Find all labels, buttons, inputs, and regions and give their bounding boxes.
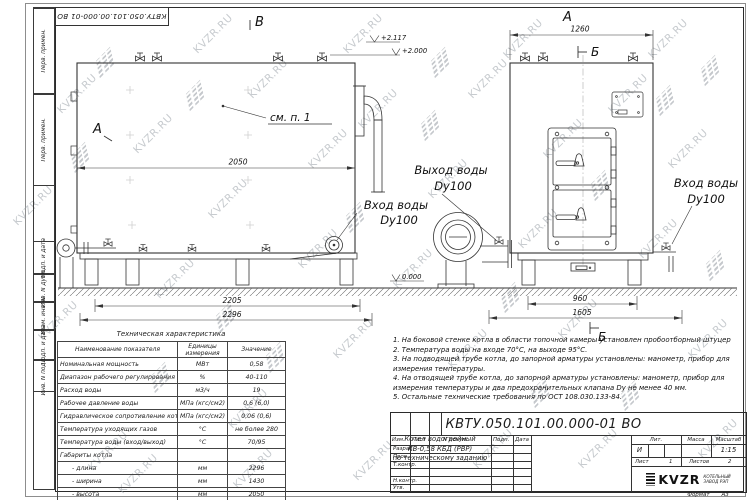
inspection-panel <box>612 92 643 117</box>
watermark-text: KVZR.RU <box>341 12 385 56</box>
spec-cell: - ширина <box>58 475 178 488</box>
watermark-text: KVZR.RU <box>606 72 650 116</box>
left-view-annotations: В А см. п. 1 +2.117 +2.000 0.000 2050 <box>77 15 427 326</box>
spec-cell: 2050 <box>228 488 286 500</box>
watermark-text: KVZR.RU <box>306 127 350 171</box>
watermark-text: KVZR.RU <box>541 117 585 161</box>
spec-cell: Рабочее давление воды <box>58 397 178 410</box>
note-line: 2. Температура воды на входе 70°С, на вы… <box>393 346 745 356</box>
spec-cell <box>228 449 286 462</box>
col-ndoc: N докум. <box>443 437 468 443</box>
drawing-sheet: KVZR.RUKVZR.RUKVZR.RUKVZR.RUKVZR.RUKVZR.… <box>0 0 750 500</box>
spec-row: Температура воды (вход/выход)°С70/95 <box>58 436 286 449</box>
lit-value: И <box>631 446 648 454</box>
watermark-text: KVZR.RU <box>516 207 560 251</box>
row-prov: Пров. <box>393 454 409 460</box>
company-subtitle-line2: ЗАВОД РЭП <box>703 479 730 484</box>
coil-logo-icon <box>646 473 655 486</box>
spec-col-value: Значение <box>228 342 286 358</box>
furnace-doors <box>548 128 616 250</box>
spec-table-title: Техническая характеристика <box>57 330 285 338</box>
col-data: Дата <box>515 437 529 443</box>
lit-label: Лит. <box>631 437 681 443</box>
kvzr-logo-watermark-icon <box>93 50 118 75</box>
margin-cell-label: Перв. примен. <box>41 29 47 73</box>
chimney-pipe <box>353 86 385 192</box>
spec-row: Номинальная мощностьМВт0,58 <box>58 358 286 371</box>
elevation-2000: +2.000 <box>402 47 427 55</box>
view-marker-a-top: А <box>562 10 572 25</box>
kvzr-logo-watermark-icon <box>698 58 723 83</box>
format-label: Формат <box>687 492 709 498</box>
spec-row: - высотамм2050 <box>58 488 286 500</box>
spec-cell: 0,6 (6,0) <box>228 397 286 410</box>
margin-cell-perv_primen_2: Перв. примен. <box>34 94 54 186</box>
note-line: 4. На отводящей трубе котла, до запорной… <box>393 374 745 393</box>
spec-row: Габариты котла <box>58 449 286 462</box>
spec-cell: Габариты котла <box>58 449 178 462</box>
top-designation-text: КВТУ.050.101.00.000-01 ВО <box>57 12 166 21</box>
watermark-text: KVZR.RU <box>426 157 470 201</box>
dim-2296: 2296 <box>222 310 241 319</box>
note-line: 3. На подводящей трубе котла, до запорно… <box>393 355 745 374</box>
company-logo-text: KVZR <box>658 472 700 487</box>
note-line: 5. Остальные технические требования по О… <box>393 393 745 403</box>
doc-name-line1: Котел водогрейный <box>391 435 489 445</box>
sheet-value: 1 <box>669 459 672 465</box>
see-note-callout: см. п. 1 <box>270 112 311 124</box>
watermark-text: KVZR.RU <box>246 57 290 101</box>
spec-cell: 0,06 (0,6) <box>228 410 286 423</box>
kvzr-logo-watermark-icon <box>418 113 443 138</box>
spec-col-units: Единицы измерения <box>178 342 228 358</box>
view-marker-a-side: А <box>92 122 102 137</box>
spec-cell: мм <box>178 475 228 488</box>
spec-row: Расход водым3/ч19 <box>58 384 286 397</box>
left-margin-strip: Перв. примен.Перв. примен.Подп. и датаИн… <box>33 7 55 490</box>
margin-cell-label: Инв. N подл. <box>41 357 47 395</box>
spec-cell: мм <box>178 462 228 475</box>
watermark-text: KVZR.RU <box>556 297 600 341</box>
watermark-text: KVZR.RU <box>466 57 510 101</box>
col-list: Лист <box>412 437 426 443</box>
outlet-label: Выход воды <box>414 163 487 177</box>
elevation-2117: +2.117 <box>381 34 407 42</box>
dim-960: 960 <box>573 294 588 303</box>
right-view-annotations: А 1260 Б 960 1605 Б <box>489 10 682 344</box>
spec-cell: - длина <box>58 462 178 475</box>
format-value: А3 <box>722 492 729 498</box>
spec-cell: МВт <box>178 358 228 371</box>
spec-cell: 70/95 <box>228 436 286 449</box>
margin-cell-podp_data_2: Подп. и дата <box>34 330 54 360</box>
watermark-text: KVZR.RU <box>55 72 99 116</box>
pipe-labels: Выход воды Dy100 Вход воды Dy100 Вход во… <box>337 163 738 244</box>
scale-label: Масштаб <box>711 437 746 443</box>
spec-cell: - высота <box>58 488 178 500</box>
inlet-right-dn-label: Dy100 <box>687 192 725 206</box>
ground-line <box>58 288 737 296</box>
spec-row: Рабочее давление водыМПа (кгс/см2)0,6 (6… <box>58 397 286 410</box>
designation: КВТУ.050.101.00.000-01 ВО <box>391 413 696 435</box>
mass-label: Масса <box>681 437 711 443</box>
spec-cell: °С <box>178 423 228 436</box>
kvzr-logo-watermark-icon <box>428 50 453 75</box>
top-designation-stamp: КВТУ.050.101.00.000-01 ВО <box>55 7 169 26</box>
spec-cell: Гидравлическое сопротивление котла <box>58 410 178 423</box>
margin-cell-perv_primen_1: Перв. примен. <box>34 8 54 94</box>
kvzr-logo-watermark-icon <box>703 253 728 278</box>
spec-cell: МПа (кгс/см2) <box>178 397 228 410</box>
inlet-left-label: Вход воды <box>364 198 428 212</box>
spec-cell: Номинальная мощность <box>58 358 178 371</box>
spec-cell: 40-110 <box>228 371 286 384</box>
kvzr-logo-watermark-icon <box>213 305 238 330</box>
row-utv: Утв. <box>393 485 404 491</box>
kvzr-logo-watermark-icon <box>68 145 93 170</box>
spec-cell: 1430 <box>228 475 286 488</box>
dim-1260: 1260 <box>570 25 589 34</box>
kvzr-logo-watermark-icon <box>498 285 523 310</box>
spec-col-name: Наименование показателя <box>58 342 178 358</box>
dim-2205: 2205 <box>222 296 241 305</box>
spec-cell: 0,58 <box>228 358 286 371</box>
kvzr-logo-watermark-icon <box>653 88 678 113</box>
row-razrab: Разраб. <box>393 446 414 452</box>
spec-cell: % <box>178 371 228 384</box>
elevation-zero: 0.000 <box>402 273 421 281</box>
sheets-value: 2 <box>728 459 731 465</box>
spec-cell: 2296 <box>228 462 286 475</box>
spec-cell: не более 280 <box>228 423 286 436</box>
dim-2050: 2050 <box>228 158 247 167</box>
sheet-label: Лист <box>635 459 649 465</box>
view-marker-v: В <box>255 15 264 30</box>
watermark-text: KVZR.RU <box>666 127 710 171</box>
note-line: 1. На боковой стенке котла в области топ… <box>393 336 745 346</box>
watermark-text: KVZR.RU <box>356 87 400 131</box>
col-podp: Подп. <box>493 437 509 443</box>
inlet-left-dn-label: Dy100 <box>380 213 418 227</box>
spec-cell: 19 <box>228 384 286 397</box>
spec-cell: мм <box>178 488 228 500</box>
inlet-right-label: Вход воды <box>674 176 738 190</box>
margin-cell-inv_podl: Инв. N подл. <box>34 360 54 392</box>
right-view <box>434 53 677 288</box>
spec-cell: °С <box>178 436 228 449</box>
watermark-text: KVZR.RU <box>131 112 175 156</box>
spec-cell: Температура уходящих газов <box>58 423 178 436</box>
spec-cell: м3/ч <box>178 384 228 397</box>
section-marker-b-top: Б <box>591 45 599 59</box>
outlet-dn-label: Dy100 <box>434 179 472 193</box>
spec-cell: Диапазон рабочего регулирования <box>58 371 178 384</box>
spec-row: Температура уходящих газов°Сне более 280 <box>58 423 286 436</box>
watermark-text: KVZR.RU <box>296 227 340 271</box>
blower-fan <box>434 213 512 289</box>
watermark-text: KVZR.RU <box>191 12 235 56</box>
spec-cell: МПа (кгс/см2) <box>178 410 228 423</box>
support-frame-left <box>80 253 357 285</box>
spec-row: - длинамм2296 <box>58 462 286 475</box>
spec-header-row: Наименование показателя Единицы измерени… <box>58 342 286 358</box>
spec-table: Наименование показателя Единицы измерени… <box>57 341 286 500</box>
company-subtitle: КОТЕЛЬНЫЙ ЗАВОД РЭП <box>703 474 730 484</box>
watermark-text: KVZR.RU <box>636 217 680 261</box>
pump-assembly <box>57 239 116 288</box>
dim-1605: 1605 <box>572 308 591 317</box>
watermark-text: KVZR.RU <box>351 439 395 483</box>
watermark-text: KVZR.RU <box>501 17 545 61</box>
spec-row: - ширинамм1430 <box>58 475 286 488</box>
col-izm: Изм. <box>392 437 405 443</box>
inlet-flange-left-view <box>326 237 343 254</box>
spec-row: Гидравлическое сопротивление котлаМПа (к… <box>58 410 286 423</box>
spec-row: Диапазон рабочего регулирования%40-110 <box>58 371 286 384</box>
technical-notes: 1. На боковой стенке котла в области топ… <box>393 336 745 403</box>
title-block: КВТУ.050.101.00.000-01 ВО Изм. Лист N до… <box>390 412 747 493</box>
support-frame-right <box>518 253 648 285</box>
inlet-fitting-right <box>653 243 676 272</box>
row-nkontr: Н.контр. <box>393 478 417 484</box>
left-view <box>57 53 385 288</box>
sheets-label: Листов <box>689 459 709 465</box>
spec-cell: Температура воды (вход/выход) <box>58 436 178 449</box>
row-tkontr: Т.контр. <box>393 462 416 468</box>
scale-value: 1:15 <box>711 446 746 454</box>
watermark-text: KVZR.RU <box>331 317 375 361</box>
kvzr-logo-watermark-icon <box>343 205 368 230</box>
kvzr-logo-watermark-icon <box>183 83 208 108</box>
spec-cell: Расход воды <box>58 384 178 397</box>
spec-cell <box>178 449 228 462</box>
watermark-text: KVZR.RU <box>206 177 250 221</box>
watermark-text: KVZR.RU <box>391 247 435 291</box>
format-note: Формат А3 <box>676 492 740 498</box>
margin-cell-label: Перв. примен. <box>41 118 47 162</box>
watermark-text: KVZR.RU <box>153 257 197 301</box>
kvzr-logo-watermark-icon <box>588 173 613 198</box>
watermark-text: KVZR.RU <box>646 17 690 61</box>
company-cell: KVZR КОТЕЛЬНЫЙ ЗАВОД РЭП <box>631 466 746 492</box>
